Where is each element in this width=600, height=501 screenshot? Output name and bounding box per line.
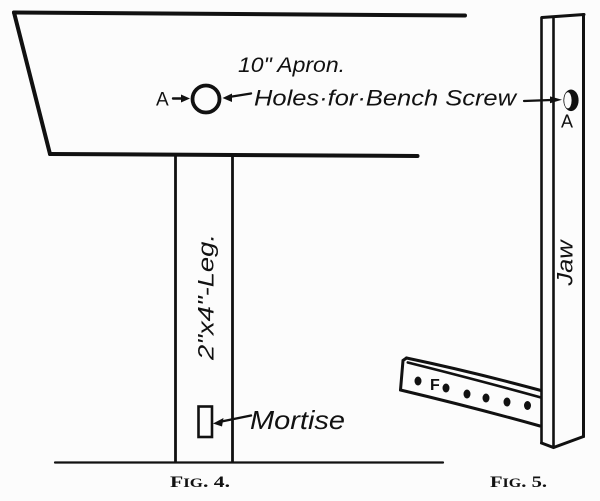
- svg-text:FIG. 5.: FIG. 5.: [490, 474, 547, 491]
- svg-text:A: A: [561, 112, 573, 132]
- svg-text:FIG. 4.: FIG. 4.: [170, 474, 230, 491]
- svg-text:A: A: [156, 90, 169, 111]
- svg-text:F: F: [430, 377, 440, 394]
- svg-text:Mortise: Mortise: [250, 405, 345, 435]
- svg-text:10" Apron.: 10" Apron.: [238, 54, 345, 77]
- svg-text:Jaw: Jaw: [553, 238, 578, 287]
- svg-text:2"x4"-Leg.: 2"x4"-Leg.: [194, 234, 219, 361]
- svg-text:Holes·for·Bench Screw: Holes·for·Bench Screw: [254, 86, 518, 111]
